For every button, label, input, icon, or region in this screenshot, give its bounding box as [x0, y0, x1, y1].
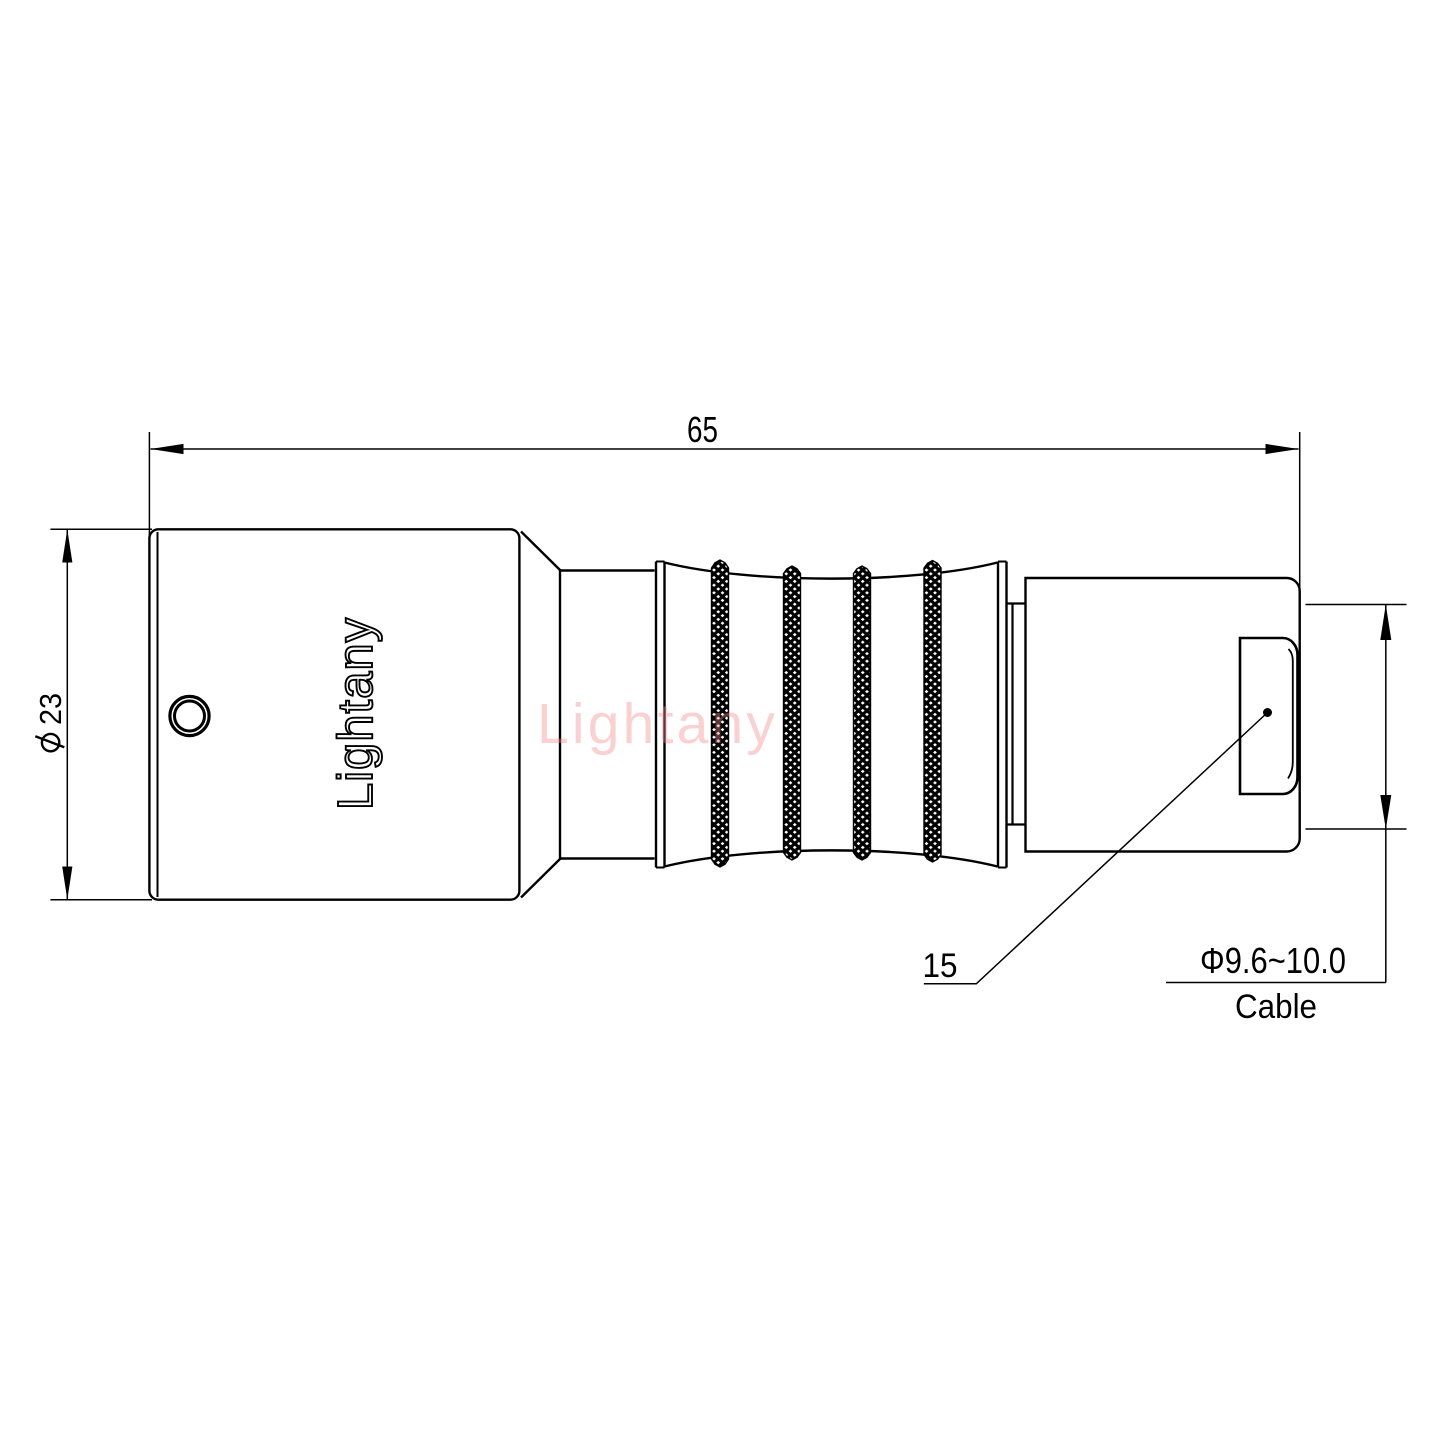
- svg-text:23: 23: [33, 693, 68, 725]
- svg-text:Lightany: Lightany: [329, 617, 383, 810]
- svg-text:65: 65: [687, 409, 718, 450]
- svg-text:15: 15: [923, 947, 958, 985]
- svg-text:Lightany: Lightany: [537, 692, 778, 756]
- svg-text:Φ9.6~10.0: Φ9.6~10.0: [1200, 940, 1346, 981]
- svg-text:Cable: Cable: [1235, 988, 1317, 1026]
